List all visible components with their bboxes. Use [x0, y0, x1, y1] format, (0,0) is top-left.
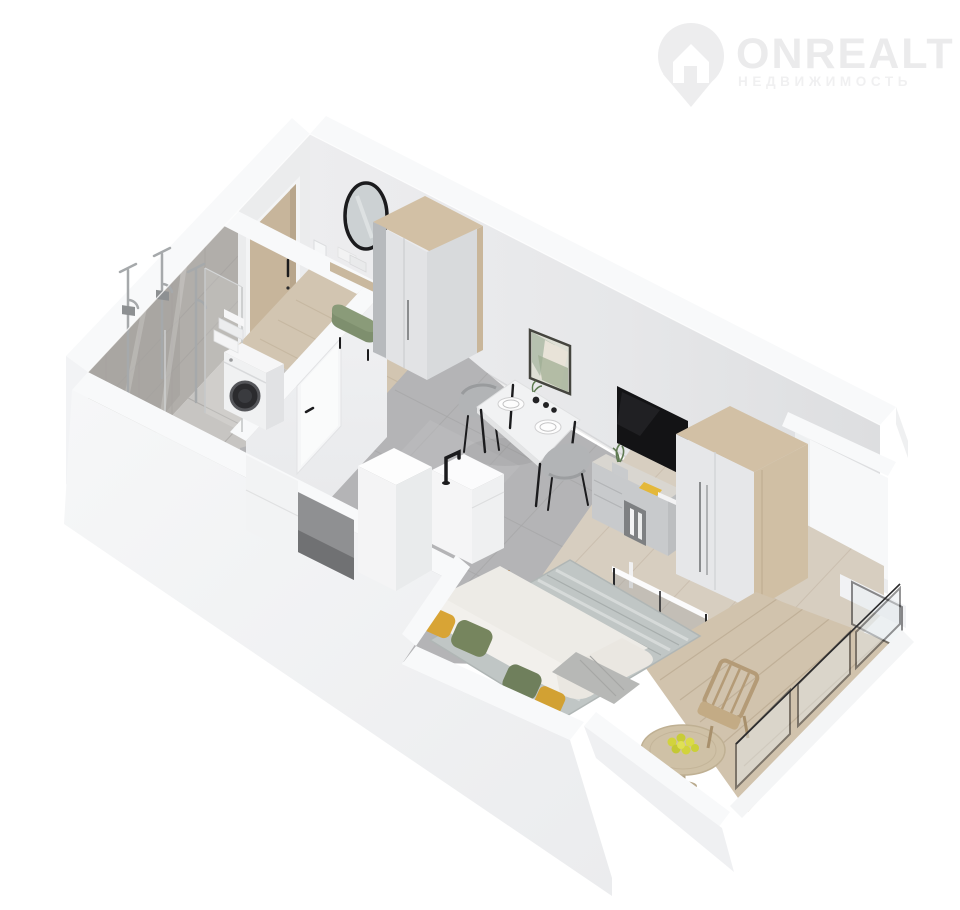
plate: [535, 420, 561, 434]
floorplan-render-image: ONREALT НЕДВИЖИМОСТЬ: [0, 0, 960, 910]
kitchen-column: [358, 448, 432, 591]
kitchen-counter: [432, 452, 504, 564]
hallway-wardrobe: [373, 196, 483, 380]
shower-head: [122, 305, 135, 316]
location-pin-house-icon: [658, 23, 724, 107]
plate: [498, 398, 524, 411]
watermark-brand-text: ONREALT: [736, 30, 955, 78]
living-wardrobe: [676, 406, 808, 610]
watermark: ONREALT НЕДВИЖИМОСТЬ: [658, 23, 955, 107]
ne-wall-end-face: [896, 407, 908, 458]
floorplan-scene: ONREALT НЕДВИЖИМОСТЬ: [0, 0, 960, 910]
watermark-subtitle-text: НЕДВИЖИМОСТЬ: [738, 74, 912, 89]
